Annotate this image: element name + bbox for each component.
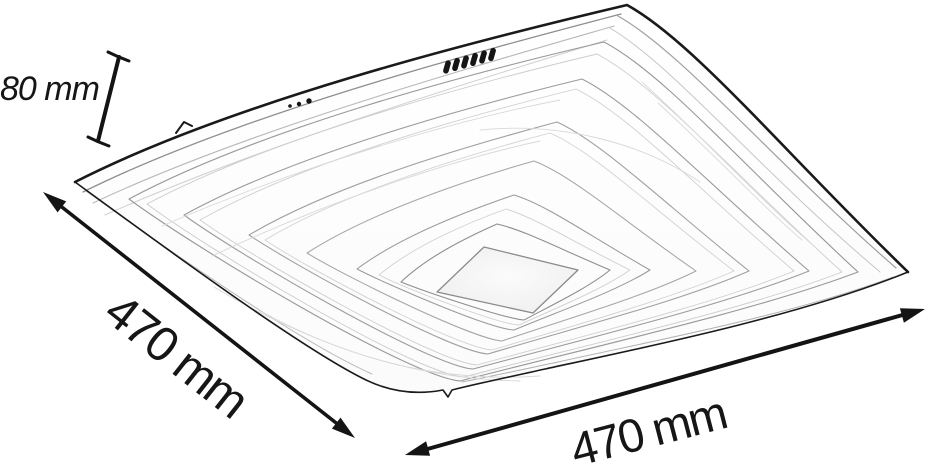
mounting-dot [288, 104, 292, 108]
mounting-dot [306, 98, 311, 103]
dimension-line [98, 57, 119, 141]
diagram-canvas: 80 mm 470 mm 470 mm [0, 0, 933, 467]
arrowhead-icon [405, 441, 430, 455]
lamp-body [75, 5, 908, 397]
mounting-dot [297, 102, 301, 106]
ceiling-light-illustration [0, 0, 933, 467]
arrowhead-icon [900, 308, 925, 322]
height-dimension-label: 80 mm [0, 70, 99, 109]
